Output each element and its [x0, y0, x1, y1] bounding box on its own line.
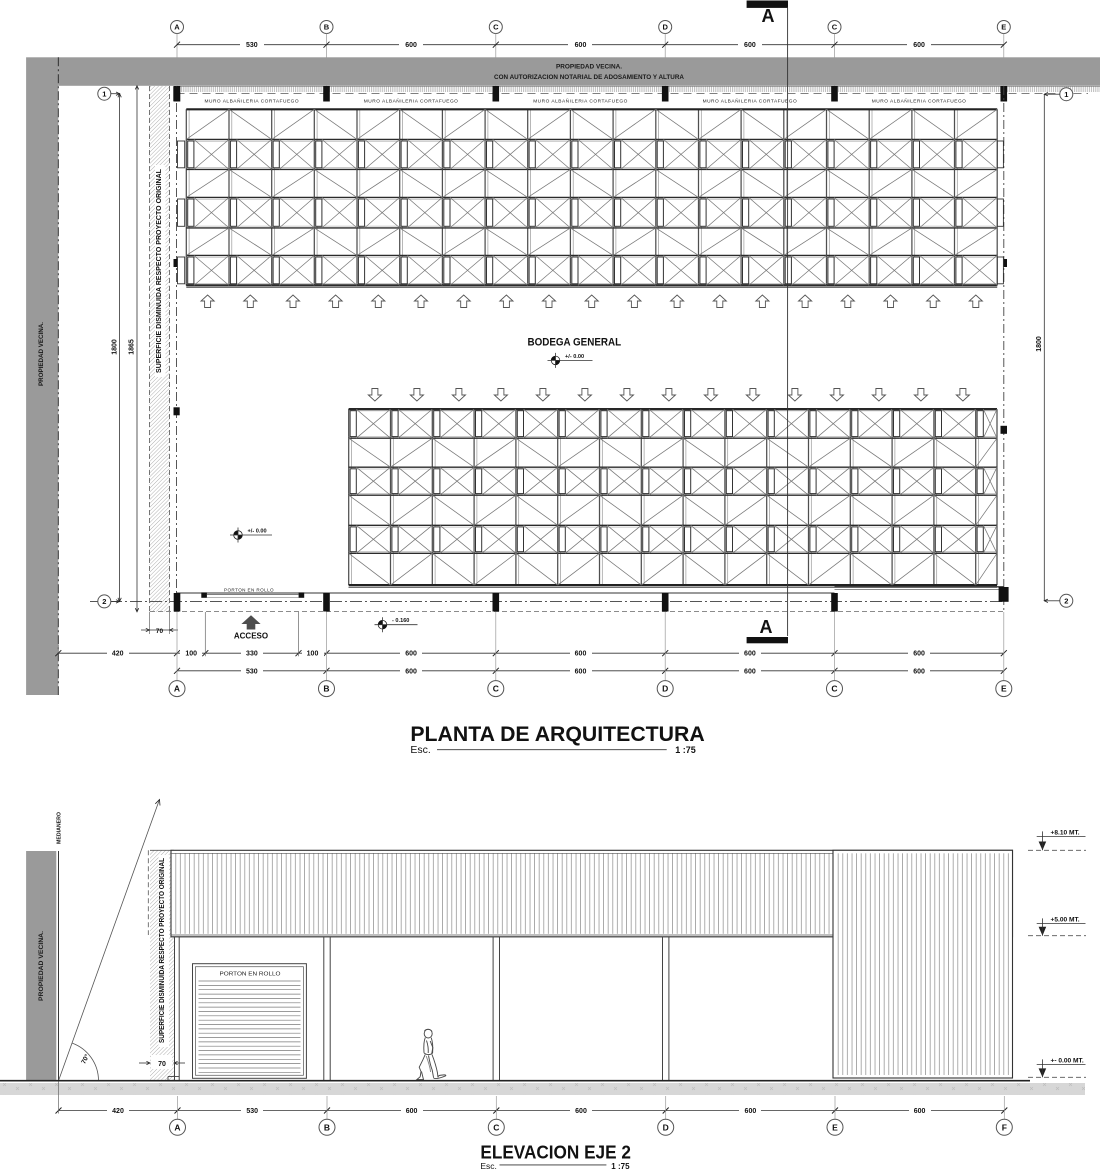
svg-text:600: 600	[405, 651, 417, 658]
svg-text:A: A	[174, 23, 180, 32]
svg-text:C: C	[493, 1122, 499, 1132]
svg-text:E: E	[832, 1122, 838, 1132]
svg-text:MURO ALBAÑILERIA CORTAFUEGO: MURO ALBAÑILERIA CORTAFUEGO	[204, 98, 299, 105]
svg-text:600: 600	[405, 668, 417, 675]
svg-text:PLANTA DE ARQUITECTURA: PLANTA DE ARQUITECTURA	[410, 722, 704, 746]
svg-text:D: D	[663, 1122, 669, 1132]
svg-text:MURO ALBAÑILERIA CORTAFUEGO: MURO ALBAÑILERIA CORTAFUEGO	[872, 98, 967, 105]
svg-text:+/- 0.00: +/- 0.00	[248, 528, 267, 534]
svg-text:1: 1	[1064, 90, 1068, 99]
svg-text:PROPIEDAD VECINA.: PROPIEDAD VECINA.	[39, 931, 45, 1001]
svg-text:ELEVACION EJE 2: ELEVACION EJE 2	[480, 1143, 631, 1164]
svg-text:ACCESO: ACCESO	[234, 632, 268, 641]
svg-text:MURO ALBAÑILERIA CORTAFUEGO: MURO ALBAÑILERIA CORTAFUEGO	[533, 98, 628, 105]
svg-text:Esc.: Esc.	[410, 744, 430, 756]
svg-text:F: F	[1002, 1122, 1007, 1132]
svg-text:PROPIEDAD VECINA.: PROPIEDAD VECINA.	[556, 64, 622, 71]
svg-text:600: 600	[406, 1108, 418, 1115]
svg-text:100: 100	[307, 651, 319, 658]
svg-text:330: 330	[246, 651, 258, 658]
svg-text:600: 600	[575, 1108, 587, 1115]
svg-text:A: A	[174, 1122, 180, 1132]
svg-text:70: 70	[158, 1061, 166, 1068]
svg-text:C: C	[493, 684, 499, 694]
svg-text:B: B	[324, 23, 330, 32]
svg-text:SUPERFICIE DISMINUIDA RESPECTO: SUPERFICIE DISMINUIDA RESPECTO PROYECTO …	[156, 168, 163, 373]
svg-text:E: E	[1001, 684, 1007, 694]
svg-text:A: A	[762, 6, 775, 26]
svg-text:1800: 1800	[1036, 336, 1043, 352]
svg-text:70°: 70°	[79, 1052, 91, 1065]
svg-text:SUPERFICIE DISMINUIDA RESPECTO: SUPERFICIE DISMINUIDA RESPECTO PROYECTO …	[159, 857, 166, 1043]
svg-text:C: C	[493, 23, 499, 32]
svg-text:1 :75: 1 :75	[675, 745, 696, 755]
svg-text:D: D	[662, 684, 668, 694]
svg-text:600: 600	[913, 668, 925, 675]
svg-text:2: 2	[1064, 597, 1068, 606]
svg-text:600: 600	[745, 1108, 757, 1115]
svg-text:600: 600	[575, 42, 587, 49]
svg-text:+5.00 MT.: +5.00 MT.	[1051, 917, 1080, 924]
svg-text:420: 420	[112, 651, 124, 658]
svg-text:C: C	[832, 23, 838, 32]
svg-text:PORTON EN ROLLO: PORTON EN ROLLO	[224, 587, 274, 592]
svg-text:PROPIEDAD VECINA.: PROPIEDAD VECINA.	[38, 322, 45, 386]
svg-text:Esc.: Esc.	[480, 1161, 497, 1171]
svg-text:530: 530	[246, 1108, 258, 1115]
svg-text:600: 600	[913, 42, 925, 49]
svg-text:2: 2	[102, 597, 106, 606]
svg-text:A: A	[174, 684, 180, 694]
svg-text:600: 600	[914, 1108, 926, 1115]
svg-text:PORTON EN ROLLO: PORTON EN ROLLO	[220, 972, 281, 978]
svg-text:1865: 1865	[129, 339, 136, 355]
svg-text:CON AUTORIZACION NOTARIAL DE A: CON AUTORIZACION NOTARIAL DE ADOSAMIENTO…	[494, 74, 684, 81]
svg-text:600: 600	[744, 651, 756, 658]
svg-text:MURO ALBAÑILERIA CORTAFUEGO: MURO ALBAÑILERIA CORTAFUEGO	[364, 98, 459, 105]
svg-text:1 :75: 1 :75	[611, 1162, 630, 1171]
svg-text:E: E	[1001, 23, 1006, 32]
svg-text:600: 600	[913, 651, 925, 658]
svg-text:600: 600	[744, 42, 756, 49]
svg-text:- 0.160: - 0.160	[392, 618, 409, 624]
svg-text:BODEGA GENERAL: BODEGA GENERAL	[528, 336, 622, 348]
svg-text:1800: 1800	[111, 339, 118, 355]
svg-text:C: C	[831, 684, 837, 694]
svg-text:530: 530	[246, 42, 258, 49]
svg-text:70: 70	[156, 628, 164, 635]
svg-text:MEDIANERO: MEDIANERO	[57, 812, 63, 844]
svg-text:600: 600	[575, 668, 587, 675]
svg-text:600: 600	[575, 651, 587, 658]
svg-text:D: D	[662, 23, 668, 32]
svg-text:600: 600	[405, 42, 417, 49]
svg-text:MURO ALBAÑILERIA CORTAFUEGO: MURO ALBAÑILERIA CORTAFUEGO	[703, 98, 798, 105]
svg-text:B: B	[323, 684, 329, 694]
svg-text:B: B	[324, 1122, 330, 1132]
svg-text:+- 0.00 MT.: +- 0.00 MT.	[1051, 1058, 1084, 1065]
svg-text:100: 100	[185, 651, 197, 658]
svg-text:530: 530	[246, 668, 258, 675]
svg-text:600: 600	[744, 668, 756, 675]
svg-text:1: 1	[102, 89, 106, 98]
svg-text:+8.10 MT.: +8.10 MT.	[1051, 830, 1080, 837]
svg-text:A: A	[760, 617, 773, 637]
svg-text:420: 420	[112, 1108, 124, 1115]
svg-text:+/- 0.00: +/- 0.00	[565, 354, 584, 360]
